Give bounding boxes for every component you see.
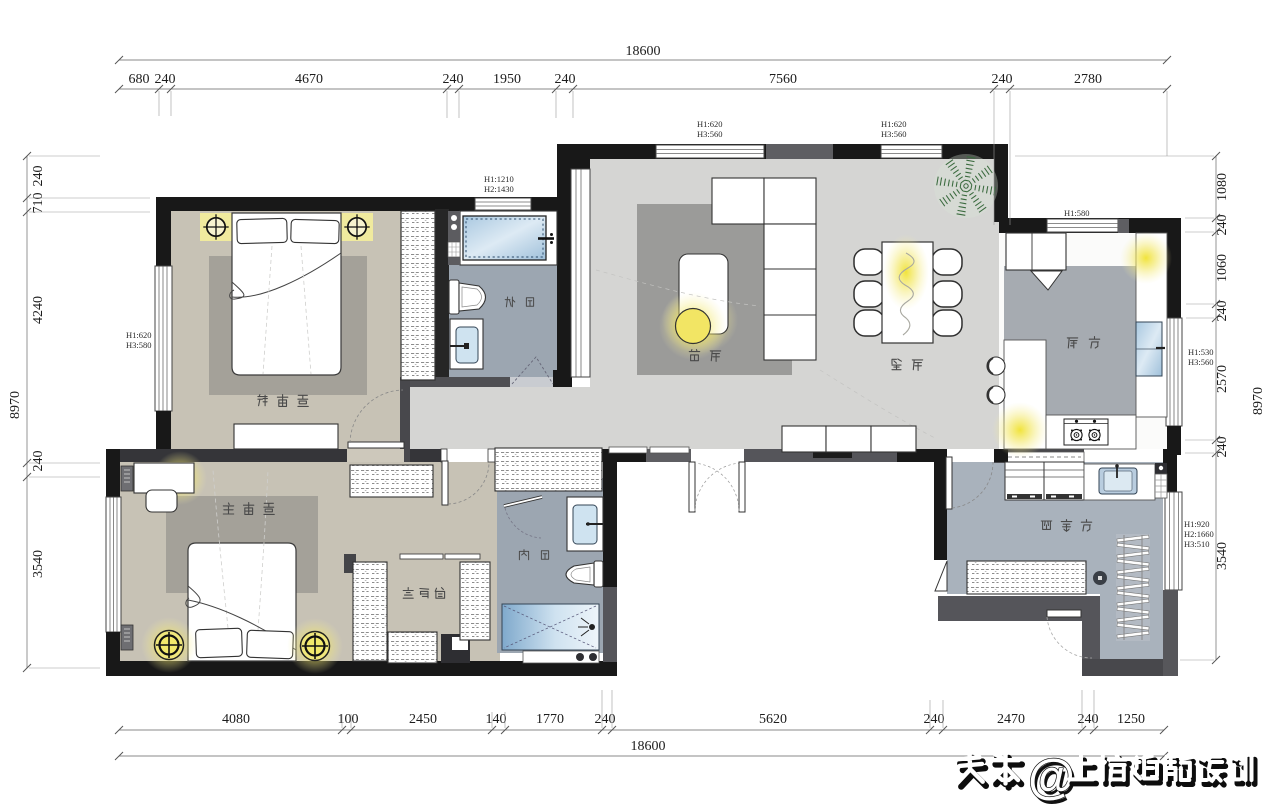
svg-text:240: 240 [1215,437,1230,458]
svg-text:H1:530: H1:530 [1188,347,1214,357]
svg-text:H1:620: H1:620 [697,119,723,129]
svg-text:1080: 1080 [1215,173,1230,201]
svg-text:100: 100 [338,712,359,727]
svg-text:710: 710 [31,193,46,214]
svg-text:140: 140 [486,712,507,727]
svg-text:7560: 7560 [769,72,797,87]
svg-text:H3:560: H3:560 [881,129,907,139]
svg-text:H1:620: H1:620 [881,119,907,129]
svg-text:240: 240 [555,72,576,87]
svg-text:8970: 8970 [1251,387,1266,415]
svg-text:240: 240 [1215,215,1230,236]
svg-text:240: 240 [924,712,945,727]
svg-text:240: 240 [31,451,46,472]
svg-text:H3:560: H3:560 [1188,357,1214,367]
svg-text:8970: 8970 [8,391,23,419]
svg-text:2470: 2470 [997,712,1025,727]
svg-text:H3:510: H3:510 [1184,539,1210,549]
svg-text:H1:1210: H1:1210 [484,174,514,184]
svg-text:240: 240 [31,166,46,187]
svg-text:H3:580: H3:580 [126,340,152,350]
svg-text:H1:580: H1:580 [1064,208,1090,218]
svg-text:18600: 18600 [631,739,666,754]
svg-text:1250: 1250 [1117,712,1145,727]
svg-text:2450: 2450 [409,712,437,727]
svg-text:H2:1660: H2:1660 [1184,529,1214,539]
svg-text:240: 240 [595,712,616,727]
svg-text:240: 240 [1078,712,1099,727]
svg-text:240: 240 [155,72,176,87]
svg-text:H1:920: H1:920 [1184,519,1210,529]
svg-text:H2:1430: H2:1430 [484,184,514,194]
svg-text:5620: 5620 [759,712,787,727]
svg-text:18600: 18600 [626,44,661,59]
svg-text:240: 240 [443,72,464,87]
svg-text:2780: 2780 [1074,72,1102,87]
svg-text:H1:620: H1:620 [126,330,152,340]
svg-text:680: 680 [129,72,150,87]
svg-text:240: 240 [992,72,1013,87]
svg-text:4670: 4670 [295,72,323,87]
svg-text:1770: 1770 [536,712,564,727]
svg-text:@: @ [1028,751,1075,804]
svg-text:H3:560: H3:560 [697,129,723,139]
svg-text:240: 240 [1215,301,1230,322]
svg-text:3540: 3540 [31,550,46,578]
svg-text:3540: 3540 [1215,542,1230,570]
svg-text:1950: 1950 [493,72,521,87]
svg-text:1060: 1060 [1215,254,1230,282]
svg-text:4080: 4080 [222,712,250,727]
svg-text:4240: 4240 [31,296,46,324]
svg-text:2570: 2570 [1215,365,1230,393]
